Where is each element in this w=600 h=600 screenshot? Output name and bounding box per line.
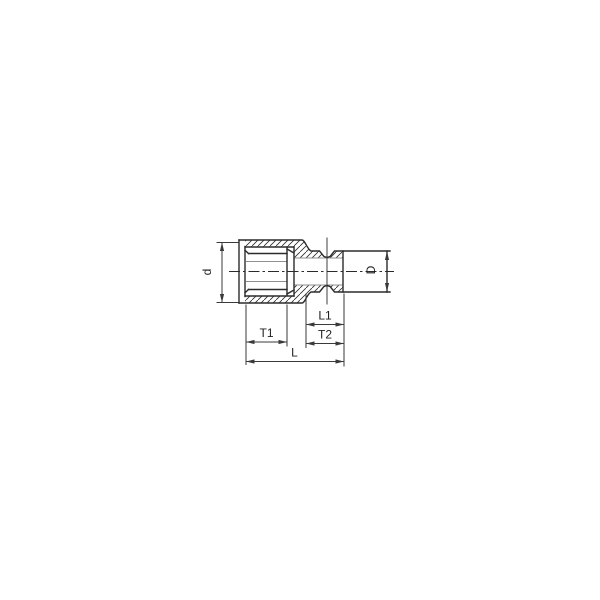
- dim-label-t1: T1: [259, 326, 273, 340]
- arrow-D-up: [385, 252, 389, 261]
- arrow-t1-right: [279, 340, 288, 344]
- arrow-t2-right: [336, 341, 345, 345]
- arrow-d-up: [220, 243, 224, 252]
- drawing-canvas: d D T1 L1 T2 L: [0, 0, 600, 600]
- technical-drawing: d D T1 L1 T2 L: [0, 0, 600, 600]
- arrow-l1-right: [336, 322, 345, 326]
- arrow-t2-left: [306, 341, 315, 345]
- dimension-labels: d D T1 L1 T2 L: [200, 265, 378, 359]
- dim-label-D: D: [364, 265, 378, 274]
- dim-label-d: d: [200, 269, 214, 276]
- arrow-D-down: [385, 283, 389, 292]
- arrow-l-left: [246, 359, 255, 363]
- arrow-l-right: [336, 359, 345, 363]
- dim-label-l1: L1: [318, 309, 332, 323]
- arrow-t1-left: [246, 340, 255, 344]
- arrow-d-down: [220, 294, 224, 303]
- dim-label-t2: T2: [318, 328, 332, 342]
- arrow-l1-left: [306, 322, 315, 326]
- dim-label-l: L: [291, 346, 298, 360]
- broach-cone-bottom: [287, 290, 294, 294]
- broach-cone-top: [287, 249, 294, 253]
